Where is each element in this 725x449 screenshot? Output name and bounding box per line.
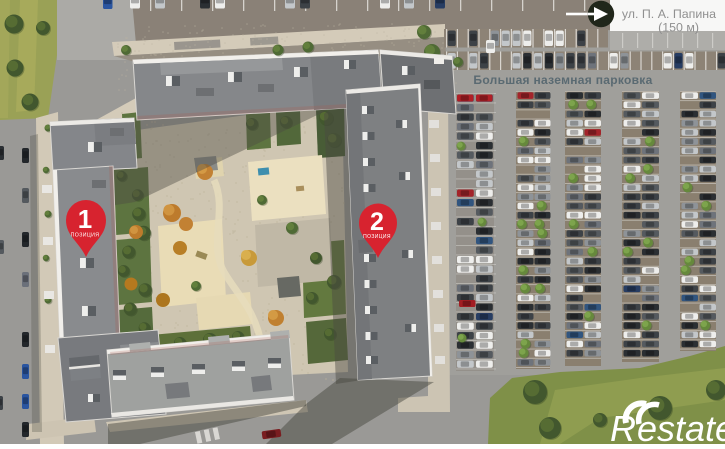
svg-text:estate: estate: [637, 408, 725, 444]
svg-text:2: 2: [370, 208, 384, 236]
svg-text:1: 1: [78, 204, 92, 234]
svg-text:ПОЗИЦИЯ: ПОЗИЦИЯ: [71, 233, 100, 239]
svg-text:ул. П. А. Папина: ул. П. А. Папина: [622, 7, 716, 21]
svg-text:(150 м): (150 м): [658, 21, 699, 35]
svg-text:ПОЗИЦИЯ: ПОЗИЦИЯ: [363, 234, 391, 240]
svg-text:R: R: [610, 408, 636, 444]
svg-text:Большая наземная парковка: Большая наземная парковка: [473, 73, 652, 87]
